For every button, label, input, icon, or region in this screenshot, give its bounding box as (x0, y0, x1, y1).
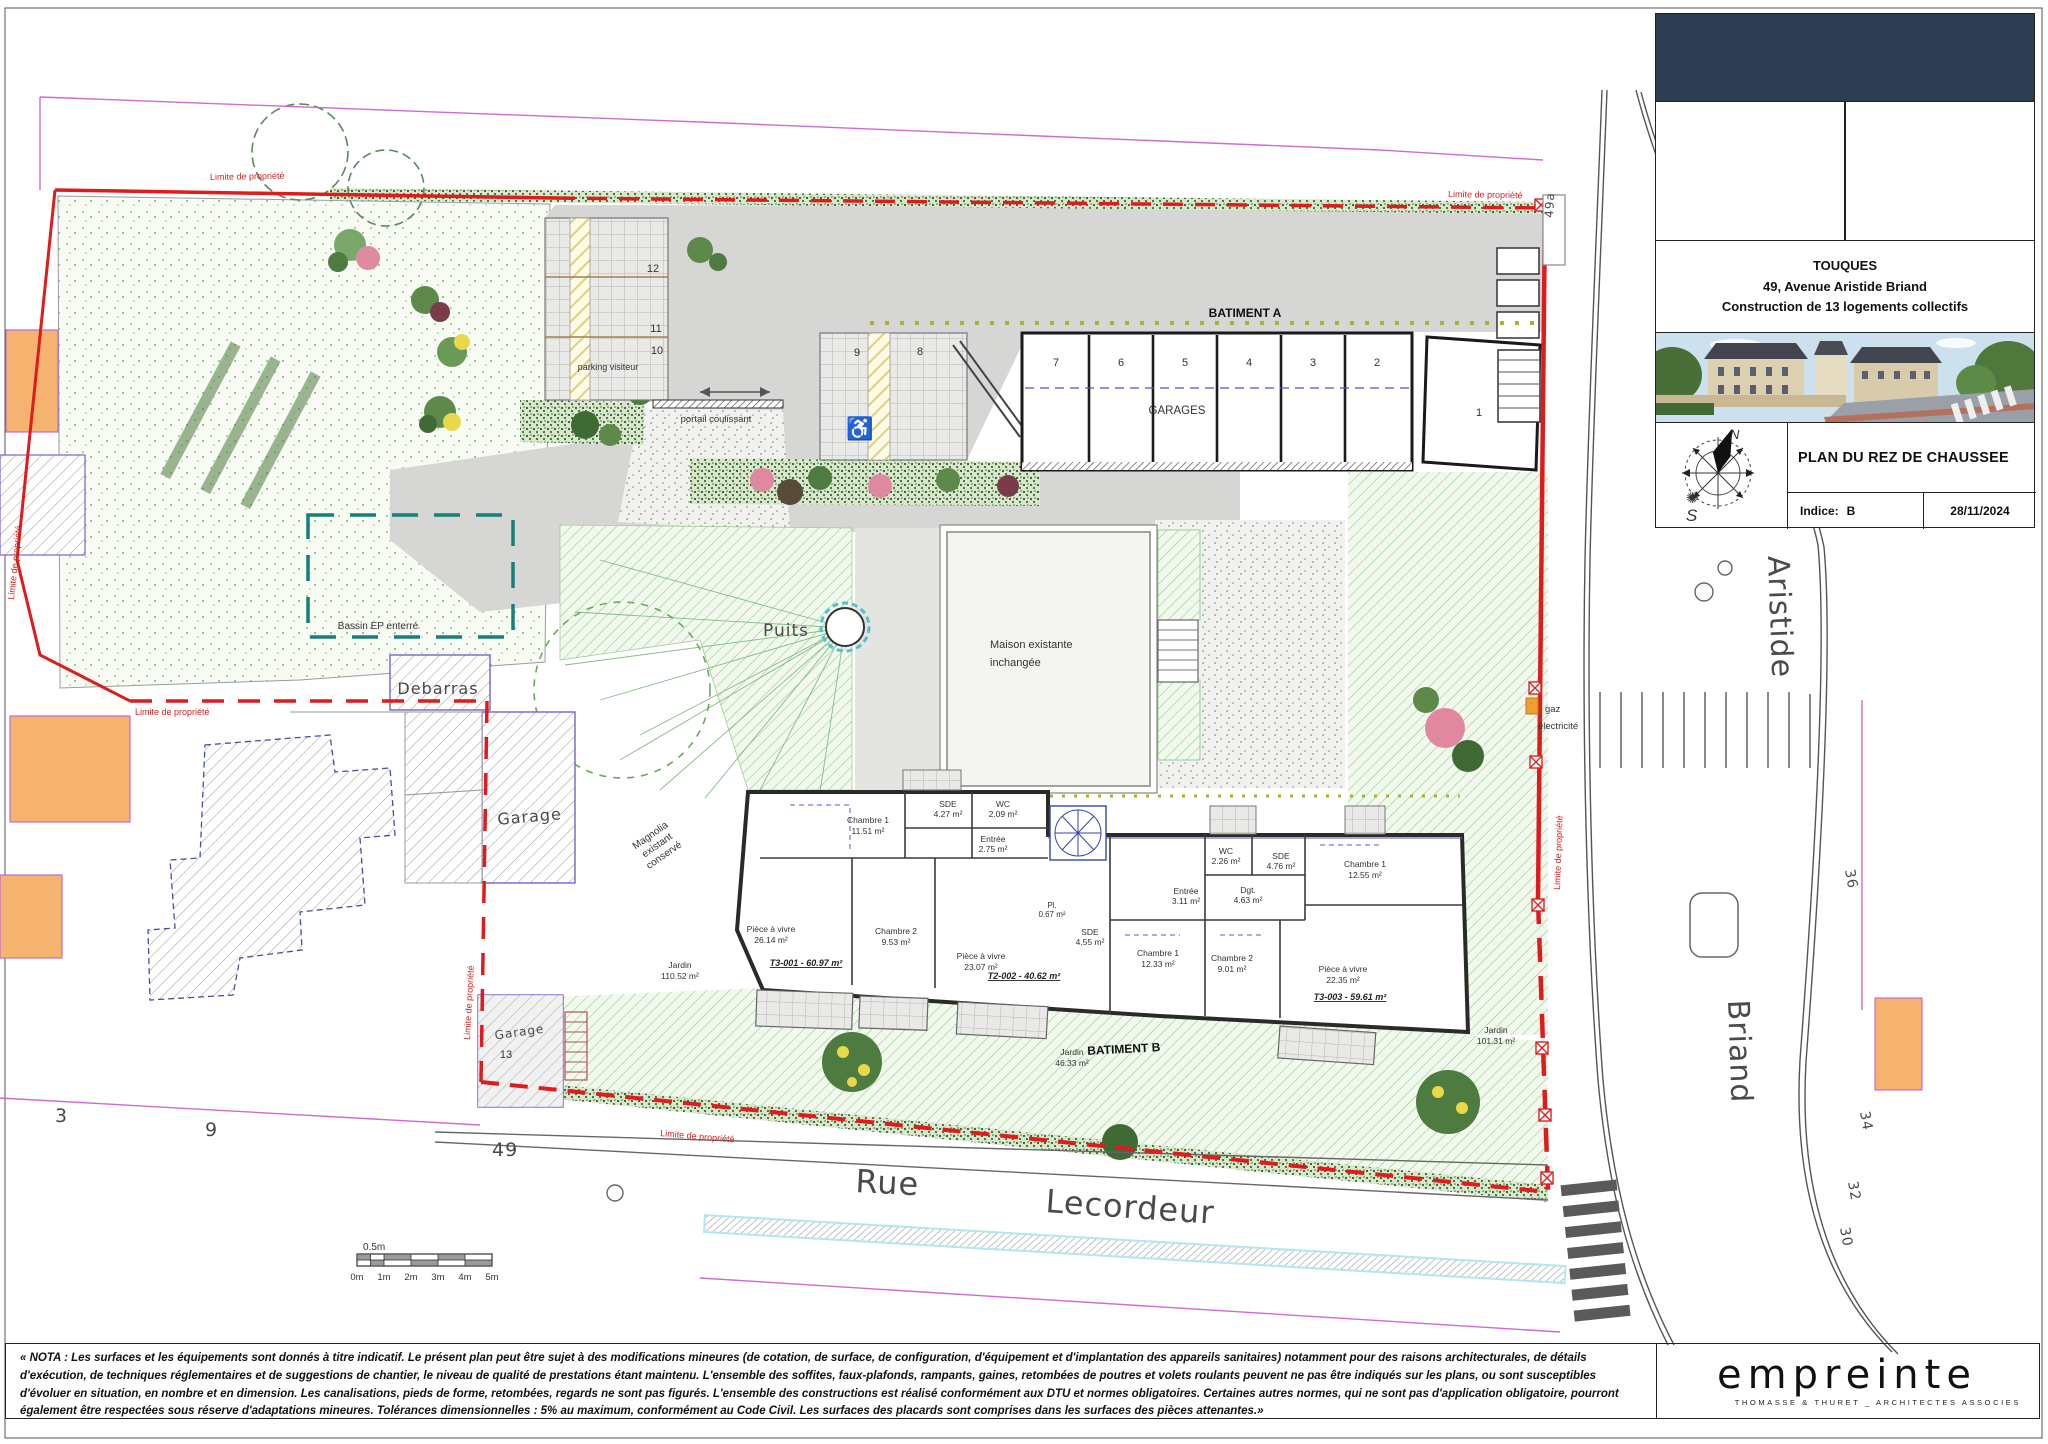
scale-tick: 3m (431, 1272, 444, 1283)
puits-label: Puits (763, 621, 809, 641)
nota-box: « NOTA : Les surfaces et les équipements… (5, 1343, 1657, 1419)
garage-number: 6 (1118, 357, 1124, 369)
room-label: WC (996, 799, 1010, 809)
room-label: SDE (1272, 851, 1290, 861)
crosswalk-rue (1561, 1179, 1631, 1321)
debarras-label: Debarras (397, 679, 478, 698)
scale-bar: 0.5m 0m 1m 2m 3m 4m 5m (350, 1242, 498, 1283)
handicap-icon: ♿ (846, 416, 873, 441)
scale-tick: 5m (485, 1272, 498, 1283)
room-label: Chambre 2 (875, 926, 917, 936)
room-area: 4.27 m² (934, 809, 963, 819)
room-area: 22.35 m² (1326, 975, 1360, 985)
jardin-label: Jardin (1060, 1047, 1083, 1057)
project-rendering (1656, 333, 2034, 423)
room-label: Pl. (1047, 901, 1056, 910)
parking-number: 10 (651, 345, 663, 357)
garage-number: 5 (1182, 357, 1188, 369)
parking-visiteur (545, 218, 668, 400)
room-label: Pièce à vivre (957, 951, 1006, 961)
parcel-number: 36 (1841, 868, 1860, 890)
street-lecordeur: Lecordeur (1044, 1182, 1215, 1232)
scale-tick: 1m (377, 1272, 390, 1283)
manhole (607, 1185, 623, 1201)
scale-half-label: 0.5m (363, 1242, 385, 1253)
unit-label: T2-002 - 40.62 m² (988, 971, 1062, 981)
jardin-label: Jardin (668, 960, 691, 970)
room-area: 2.26 m² (1212, 856, 1241, 866)
limite-label: Limite de propriété (210, 171, 285, 182)
room-label: Chambre 1 (1344, 859, 1386, 869)
limite-label: Limite de propriété (462, 965, 476, 1040)
room-label: Chambre 1 (847, 815, 889, 825)
tree-pit (1690, 893, 1738, 957)
bassin-label: Bassin EP enterré (338, 621, 419, 632)
scale-tick: 0m (350, 1272, 363, 1283)
garages-label: GARAGES (1149, 405, 1206, 417)
room-area: 4.63 m² (1234, 895, 1263, 905)
parcel-number: 3 (55, 1105, 68, 1127)
sun-icon: ✺ (1686, 490, 1699, 507)
manhole (1695, 583, 1713, 601)
project-title: TOUQUES 49, Avenue Aristide Briand Const… (1656, 241, 2034, 333)
electricite-label: électricité (1538, 721, 1578, 732)
gaz-marker (1526, 698, 1538, 714)
date-cell: 28/11/2024 (1924, 493, 2036, 529)
nota-text: « NOTA : Les surfaces et les équipements… (20, 1350, 1642, 1421)
limite-label: Limite de propriété (1552, 815, 1565, 890)
batiment-a-label: BATIMENT A (1209, 306, 1282, 320)
parking-number: 8 (917, 346, 923, 358)
room-label: Pièce à vivre (747, 924, 796, 934)
room-label: SDE (1081, 927, 1099, 937)
garage-number: 1 (1476, 407, 1482, 419)
parcel-number: 32 (1844, 1180, 1863, 1202)
rendering-illustration (1656, 333, 2034, 423)
architect-logo: empreinte (1717, 1355, 1977, 1395)
indice-value: B (1847, 504, 1856, 518)
limite-label: Limite de propriété (1448, 189, 1523, 200)
jardin-area: 46.33 m² (1055, 1058, 1089, 1068)
parking-visiteur-label: parking visiteur (578, 362, 639, 372)
garage-number: 3 (1310, 357, 1316, 369)
compass-south-label: S (1686, 506, 1698, 525)
title-block-empty-row (1656, 101, 2034, 241)
project-description: Construction de 13 logements collectifs (1722, 298, 1968, 316)
parking-number: 11 (650, 323, 661, 335)
architect-logo-box: empreinte THOMASSE & THURET _ ARCHITECTE… (1655, 1343, 2040, 1419)
jardin-area: 101.31 m² (1477, 1036, 1515, 1046)
room-area: 9.53 m² (882, 937, 911, 947)
maison-label-2: inchangée (990, 657, 1041, 669)
parking-number: 12 (647, 263, 659, 275)
room-area: 12.33 m² (1141, 959, 1175, 969)
limite-label: Limite de propriété (135, 707, 210, 717)
street-aristide: Aristide (1760, 555, 1799, 679)
maison-label-1: Maison existante (990, 639, 1073, 651)
street-briand: Briand (1720, 999, 1759, 1104)
room-area: 4.55 m² (1076, 937, 1105, 947)
title-block: TOUQUES 49, Avenue Aristide Briand Const… (1655, 13, 2035, 528)
compass-north-label: N (1730, 427, 1740, 442)
compass-rose: N S ✺ (1656, 423, 1786, 527)
garage13-number: 13 (500, 1049, 512, 1061)
compass-cell: N S ✺ (1656, 423, 1788, 529)
parcel-number: 30 (1836, 1226, 1855, 1248)
room-label: Chambre 2 (1211, 953, 1253, 963)
parcel-number: 49a (1542, 192, 1557, 218)
parking-number: 9 (854, 347, 860, 359)
architect-logo-subtitle: THOMASSE & THURET _ ARCHITECTES ASSOCIES (1735, 1398, 2039, 1407)
title-block-bottom: N S ✺ PLAN DU REZ DE CHAUSSEE Indice: B … (1656, 423, 2034, 529)
scale-tick: 2m (404, 1272, 417, 1283)
parcel-number: 9 (205, 1119, 218, 1141)
room-area: 2.75 m² (979, 844, 1008, 854)
limite-label: Limite de propriété (660, 1128, 735, 1144)
project-address: 49, Avenue Aristide Briand (1763, 278, 1927, 296)
parcel-number: 49 (492, 1139, 518, 1161)
room-area: 9.01 m² (1218, 964, 1247, 974)
room-label: WC (1219, 846, 1233, 856)
unit-label: T3-003 - 59.61 m² (1314, 992, 1388, 1002)
drawing-title: PLAN DU REZ DE CHAUSSEE (1798, 450, 2009, 466)
unit-label: T3-001 - 60.97 m² (770, 958, 844, 968)
room-area: 2.09 m² (989, 809, 1018, 819)
room-label: Entrée (980, 834, 1005, 844)
room-area: 4.76 m² (1267, 861, 1296, 871)
gaz-label: gaz (1545, 704, 1561, 715)
room-area: 12.55 m² (1348, 870, 1382, 880)
project-city: TOUQUES (1813, 257, 1877, 275)
portail-label: portail coulissant (681, 414, 752, 425)
garage-number: 2 (1374, 357, 1380, 369)
parcel-number: 34 (1856, 1110, 1875, 1132)
crosswalk-avenue (1600, 692, 1810, 768)
indice-cell: Indice: B (1788, 493, 1924, 529)
date-value: 28/11/2024 (1950, 504, 2009, 518)
scale-tick: 4m (458, 1272, 471, 1283)
indice-label: Indice: (1800, 504, 1839, 518)
jardin-area: 110.52 m² (661, 971, 699, 981)
street-rue: Rue (855, 1162, 921, 1203)
room-label: Entrée (1173, 886, 1198, 896)
room-label: Dgt. (1240, 885, 1256, 895)
garage-number: 7 (1053, 357, 1059, 369)
drawing-title-cell: PLAN DU REZ DE CHAUSSEE (1788, 423, 2036, 493)
room-area: 11.51 m² (852, 826, 885, 836)
jardin-label: Jardin (1484, 1025, 1507, 1035)
room-area: 0.67 m² (1038, 910, 1065, 919)
room-label: Chambre 1 (1137, 948, 1179, 958)
room-label: SDE (939, 799, 957, 809)
garage-number: 4 (1246, 357, 1252, 369)
title-block-header-band (1656, 14, 2034, 102)
manhole (1718, 561, 1732, 575)
room-area: 26.14 m² (754, 935, 788, 945)
room-area: 3.11 m² (1172, 896, 1200, 906)
room-label: Pièce à vivre (1319, 964, 1368, 974)
site-plan-sheet: BATIMENT A BATIMENT B GARAGES 7 6 5 4 3 … (0, 0, 2048, 1444)
